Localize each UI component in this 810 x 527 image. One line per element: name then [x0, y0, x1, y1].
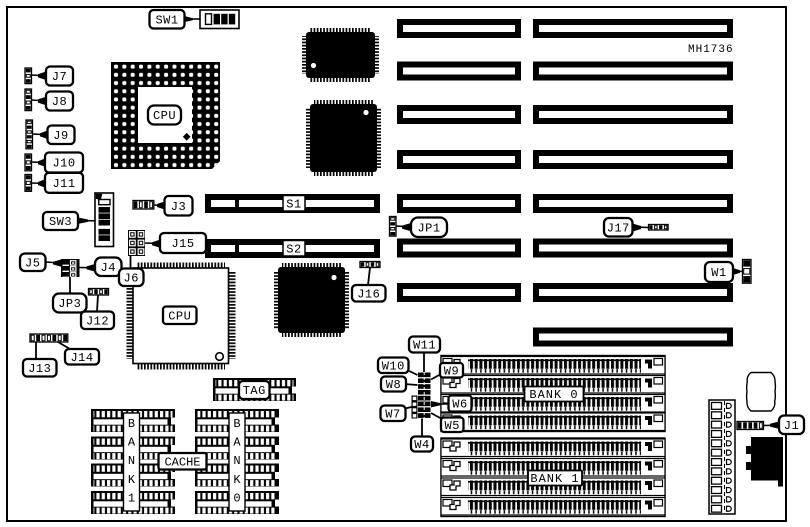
svg-text:BANK 0: BANK 0: [529, 388, 578, 402]
svg-text:J7: J7: [52, 70, 67, 84]
svg-text:S2: S2: [286, 242, 301, 256]
svg-text:CPU: CPU: [168, 309, 191, 323]
svg-text:J10: J10: [52, 157, 75, 171]
svg-text:J8: J8: [52, 95, 67, 109]
svg-text:J13: J13: [28, 362, 51, 376]
svg-text:S1: S1: [286, 197, 301, 211]
svg-text:J1: J1: [784, 419, 799, 433]
svg-text:W9: W9: [444, 364, 459, 378]
svg-text:BANK 1: BANK 1: [530, 472, 579, 486]
svg-text:B: B: [233, 417, 240, 431]
svg-text:J4: J4: [101, 261, 116, 275]
svg-text:W1: W1: [711, 266, 726, 280]
svg-text:W8: W8: [386, 378, 401, 392]
svg-text:SW1: SW1: [155, 13, 178, 27]
svg-text:CPU: CPU: [153, 109, 176, 123]
svg-text:W7: W7: [385, 407, 400, 421]
svg-text:J3: J3: [171, 200, 186, 214]
svg-text:N: N: [128, 454, 135, 468]
svg-text:JP1: JP1: [417, 221, 440, 235]
svg-text:N: N: [233, 454, 240, 468]
svg-text:W10: W10: [382, 359, 405, 373]
svg-text:J14: J14: [70, 351, 93, 365]
svg-text:W5: W5: [445, 419, 460, 433]
svg-text:K: K: [233, 473, 241, 487]
svg-text:J5: J5: [25, 256, 40, 270]
svg-text:J15: J15: [171, 237, 194, 251]
svg-text:CACHE: CACHE: [164, 455, 200, 469]
svg-text:TAG: TAG: [243, 384, 266, 398]
svg-text:J11: J11: [52, 177, 75, 191]
svg-text:0: 0: [233, 491, 240, 505]
svg-text:1: 1: [128, 491, 135, 505]
svg-text:J6: J6: [124, 271, 139, 285]
svg-text:B: B: [128, 417, 135, 431]
svg-text:MH1736: MH1736: [688, 44, 734, 56]
svg-text:J17: J17: [607, 221, 630, 235]
svg-text:J9: J9: [53, 129, 68, 143]
svg-text:K: K: [128, 473, 136, 487]
svg-text:A: A: [128, 436, 136, 450]
svg-text:W11: W11: [413, 339, 436, 353]
svg-text:W6: W6: [452, 398, 467, 412]
svg-text:J16: J16: [357, 287, 380, 301]
svg-text:J12: J12: [86, 314, 109, 328]
svg-text:W4: W4: [414, 438, 429, 452]
svg-text:JP3: JP3: [58, 297, 81, 311]
svg-text:A: A: [233, 436, 241, 450]
svg-text:SW3: SW3: [49, 215, 72, 229]
